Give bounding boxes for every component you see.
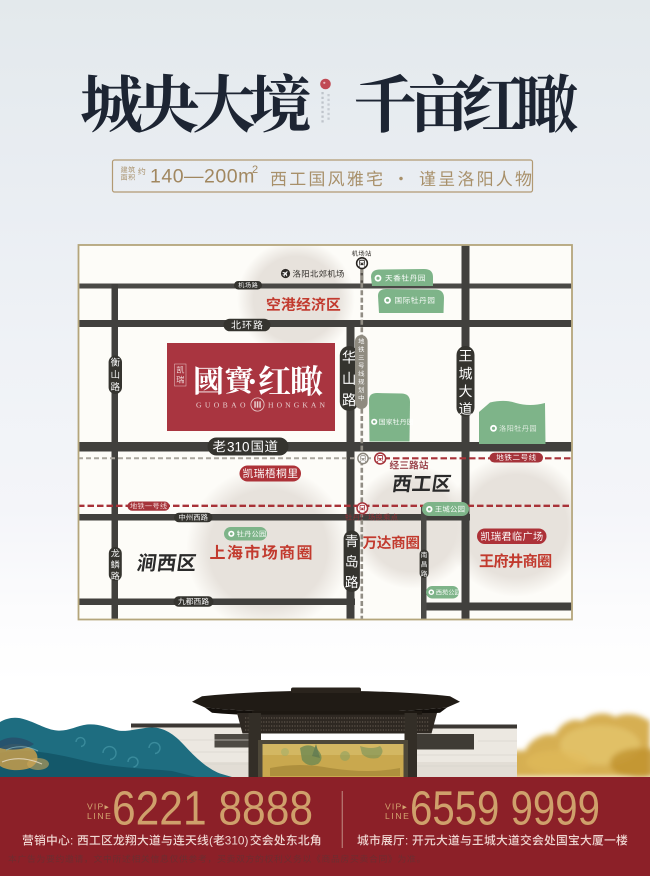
svg-text:6559 9999: 6559 9999 (410, 783, 600, 836)
svg-text::: : (405, 834, 408, 848)
svg-text:6221 8888: 6221 8888 (112, 783, 313, 836)
svg-text:LINE: LINE (87, 811, 113, 821)
svg-text:140—200m: 140—200m (150, 166, 255, 188)
svg-text:2: 2 (252, 164, 258, 176)
svg-text::: : (70, 834, 73, 848)
svg-text:HONGKAN: HONGKAN (268, 401, 328, 410)
svg-text:(: ( (209, 834, 213, 848)
svg-text:310): 310) (225, 834, 249, 848)
svg-text:LINE: LINE (385, 811, 411, 821)
svg-text:VIP▸: VIP▸ (87, 802, 110, 812)
svg-text:VIP▸: VIP▸ (385, 802, 408, 812)
svg-text:310: 310 (227, 439, 250, 454)
svg-text:GUOBAO: GUOBAO (196, 401, 249, 410)
